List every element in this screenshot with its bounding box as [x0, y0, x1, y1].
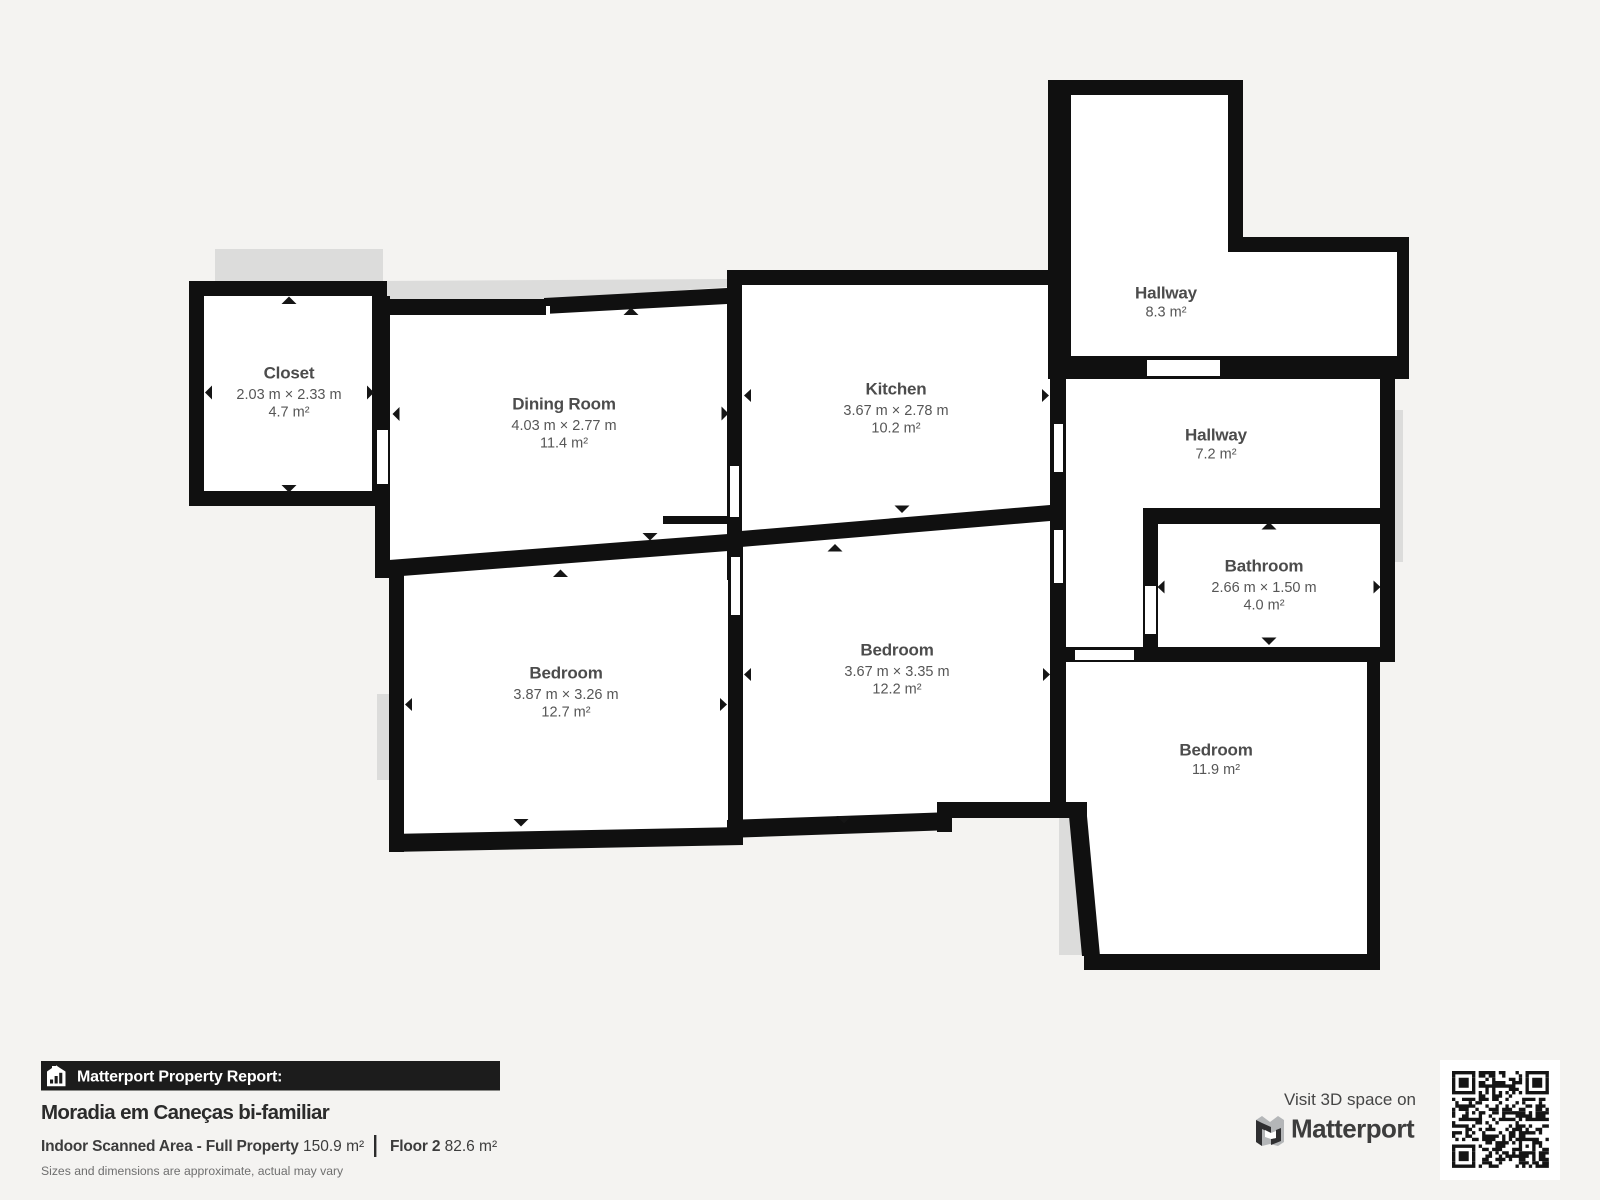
svg-text:12.7 m²: 12.7 m² — [541, 705, 590, 721]
svg-text:Dining Room: Dining Room — [512, 395, 616, 414]
svg-text:Bedroom: Bedroom — [529, 664, 602, 683]
svg-text:12.2 m²: 12.2 m² — [872, 682, 921, 698]
svg-text:Sizes and dimensions are appro: Sizes and dimensions are approximate, ac… — [41, 1164, 344, 1178]
svg-text:2.66 m × 1.50 m: 2.66 m × 1.50 m — [1211, 580, 1316, 596]
svg-text:4.7 m²: 4.7 m² — [268, 405, 309, 421]
svg-text:Matterport: Matterport — [1291, 1114, 1415, 1144]
svg-text:Visit 3D space on: Visit 3D space on — [1284, 1090, 1416, 1109]
svg-text:11.4 m²: 11.4 m² — [540, 436, 588, 452]
svg-text:Bathroom: Bathroom — [1225, 557, 1304, 576]
svg-text:Hallway: Hallway — [1185, 426, 1248, 445]
svg-text:Closet: Closet — [264, 364, 315, 383]
svg-text:11.9 m²: 11.9 m² — [1192, 762, 1240, 778]
svg-text:3.67 m × 3.35 m: 3.67 m × 3.35 m — [844, 664, 949, 680]
svg-text:Kitchen: Kitchen — [866, 380, 927, 399]
svg-text:2.03 m × 2.33 m: 2.03 m × 2.33 m — [236, 387, 341, 403]
svg-text:8.3 m²: 8.3 m² — [1145, 305, 1186, 321]
svg-text:Moradia em Caneças bi-familiar: Moradia em Caneças bi-familiar — [41, 1101, 330, 1124]
svg-text:10.2 m²: 10.2 m² — [871, 421, 920, 437]
svg-text:Bedroom: Bedroom — [860, 641, 933, 660]
svg-text:Hallway: Hallway — [1135, 284, 1198, 303]
svg-text:Floor 2 82.6 m²: Floor 2 82.6 m² — [390, 1138, 497, 1155]
svg-text:7.2 m²: 7.2 m² — [1195, 447, 1236, 463]
svg-text:3.67 m × 2.78 m: 3.67 m × 2.78 m — [843, 403, 948, 419]
svg-text:4.03 m × 2.77 m: 4.03 m × 2.77 m — [511, 418, 616, 434]
svg-text:Matterport Property Report:: Matterport Property Report: — [77, 1069, 282, 1086]
svg-text:Bedroom: Bedroom — [1179, 741, 1252, 760]
svg-text:Indoor Scanned Area - Full Pro: Indoor Scanned Area - Full Property 150.… — [41, 1138, 364, 1155]
svg-text:4.0 m²: 4.0 m² — [1243, 598, 1284, 614]
svg-text:3.87 m × 3.26 m: 3.87 m × 3.26 m — [513, 687, 618, 703]
